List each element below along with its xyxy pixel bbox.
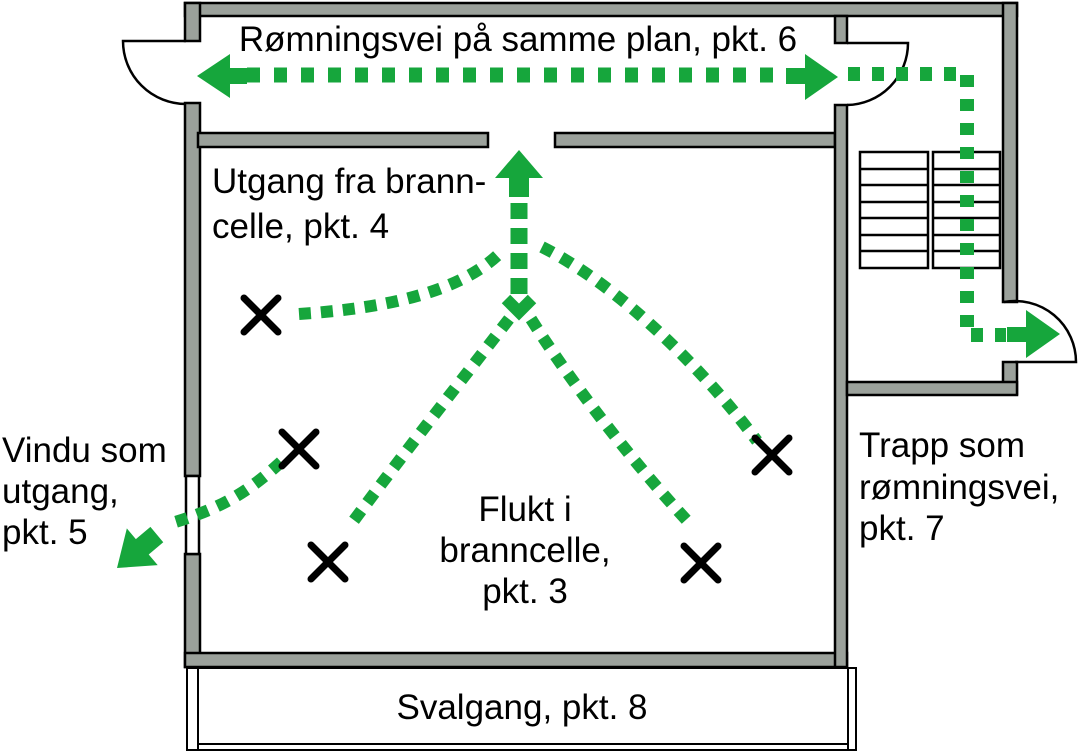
- label-stair-escape-line2: rømningsvei,: [859, 468, 1059, 507]
- label-exit-fire-cell-line2: celle, pkt. 4: [212, 207, 389, 246]
- door-main-exit: [123, 41, 186, 104]
- wall-interior-left: [198, 133, 488, 147]
- wall-top: [185, 3, 1017, 16]
- arrow-window-exit-icon: [102, 516, 173, 586]
- route-branch-upper-right: [542, 247, 757, 441]
- wall-stairwell-left-lower: [835, 105, 847, 667]
- x-mark: [282, 432, 316, 466]
- route-branch-upper-left: [299, 250, 503, 314]
- floor-plan-page: Rømningsvei på samme plan, pkt. 6 Utgang…: [0, 0, 1080, 756]
- label-stair-escape-line3: pkt. 7: [859, 509, 945, 548]
- wall-stairwell-bottom: [847, 382, 1017, 395]
- floor-plan-diagram: Rømningsvei på samme plan, pkt. 6 Utgang…: [0, 0, 1080, 756]
- arrow-exit-right-icon: [1007, 310, 1060, 358]
- label-stair-escape-line1: Trapp som: [859, 426, 1025, 465]
- arrow-right-to-stairwell-icon: [786, 54, 838, 100]
- labels: Rømningsvei på samme plan, pkt. 6 Utgang…: [2, 20, 1059, 727]
- window-symbol: [186, 476, 199, 554]
- x-mark: [244, 298, 278, 332]
- x-mark: [311, 545, 345, 579]
- label-flight-fire-cell-line3: pkt. 3: [482, 572, 568, 611]
- staircase: [860, 152, 1000, 268]
- wall-left-lower: [185, 554, 200, 667]
- wall-left-middle: [185, 103, 200, 476]
- wall-stairwell-left-upper: [835, 16, 847, 43]
- label-walkway: Svalgang, pkt. 8: [397, 688, 648, 727]
- label-flight-fire-cell-line1: Flukt i: [478, 490, 571, 529]
- label-window-exit-line3: pkt. 5: [2, 513, 88, 552]
- arrow-up-through-opening-icon: [495, 150, 543, 197]
- x-mark: [684, 546, 718, 580]
- label-window-exit-line1: Vindu som: [2, 431, 167, 470]
- x-mark: [755, 438, 789, 472]
- route-junction-chevron: [506, 299, 532, 312]
- wall-left-upper: [185, 3, 200, 41]
- wall-interior-right: [555, 133, 835, 147]
- window-left-wall: [186, 476, 199, 554]
- label-exit-fire-cell-line1: Utgang fra brann-: [212, 162, 486, 201]
- wall-right-upper: [1003, 3, 1017, 302]
- label-flight-fire-cell-line2: branncelle,: [439, 531, 610, 570]
- wall-bottom-main: [185, 653, 847, 667]
- arrow-left-exit-icon: [197, 54, 247, 98]
- label-route-same-floor: Rømningsvei på samme plan, pkt. 6: [239, 20, 797, 59]
- label-window-exit-line2: utgang,: [2, 472, 119, 511]
